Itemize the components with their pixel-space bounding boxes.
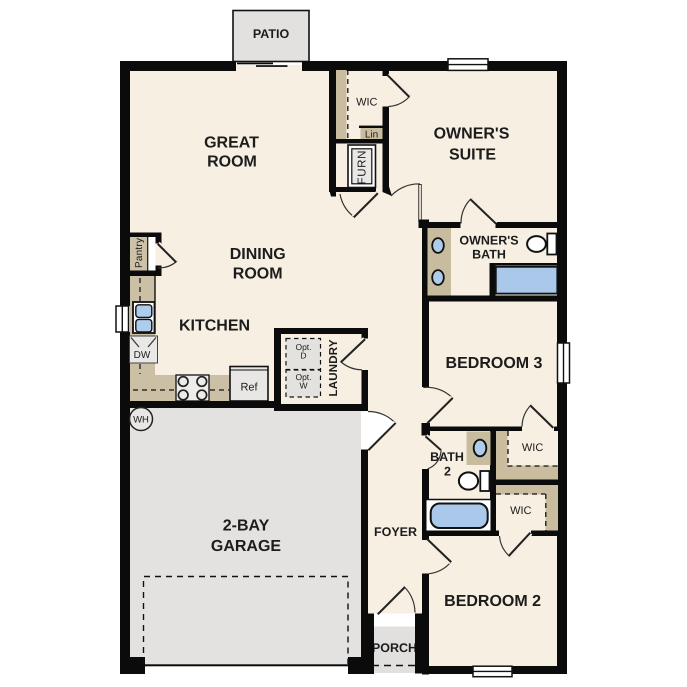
svg-text:BATH: BATH — [472, 248, 506, 262]
svg-text:OWNER'S: OWNER'S — [434, 125, 510, 142]
svg-text:D: D — [300, 351, 306, 361]
svg-text:PATIO: PATIO — [253, 27, 290, 41]
svg-text:LAUNDRY: LAUNDRY — [328, 339, 340, 396]
svg-text:BEDROOM 2: BEDROOM 2 — [444, 593, 541, 610]
svg-text:PORCH: PORCH — [372, 641, 417, 655]
svg-text:BATH: BATH — [430, 450, 464, 464]
svg-text:GREAT: GREAT — [204, 134, 259, 151]
svg-text:WIC: WIC — [510, 505, 531, 517]
svg-text:DW: DW — [134, 350, 151, 361]
svg-text:OWNER'S: OWNER'S — [459, 234, 518, 248]
svg-text:ROOM: ROOM — [207, 153, 257, 170]
svg-text:WIC: WIC — [522, 442, 543, 454]
svg-text:FURN: FURN — [356, 151, 368, 185]
svg-text:WH: WH — [133, 415, 149, 426]
svg-text:GARAGE: GARAGE — [211, 538, 282, 555]
svg-text:Pantry: Pantry — [134, 238, 145, 268]
svg-text:Ref: Ref — [240, 382, 258, 394]
svg-text:Lin: Lin — [365, 130, 378, 141]
svg-text:2: 2 — [444, 465, 451, 479]
svg-text:BEDROOM 3: BEDROOM 3 — [446, 355, 543, 372]
svg-text:W: W — [299, 381, 307, 391]
svg-text:ROOM: ROOM — [233, 265, 283, 282]
svg-text:KITCHEN: KITCHEN — [179, 318, 250, 335]
svg-text:WIC: WIC — [356, 97, 377, 109]
svg-text:FOYER: FOYER — [374, 525, 417, 539]
svg-text:DINING: DINING — [230, 246, 286, 263]
svg-text:SUITE: SUITE — [449, 147, 496, 164]
svg-text:2-BAY: 2-BAY — [223, 518, 270, 535]
